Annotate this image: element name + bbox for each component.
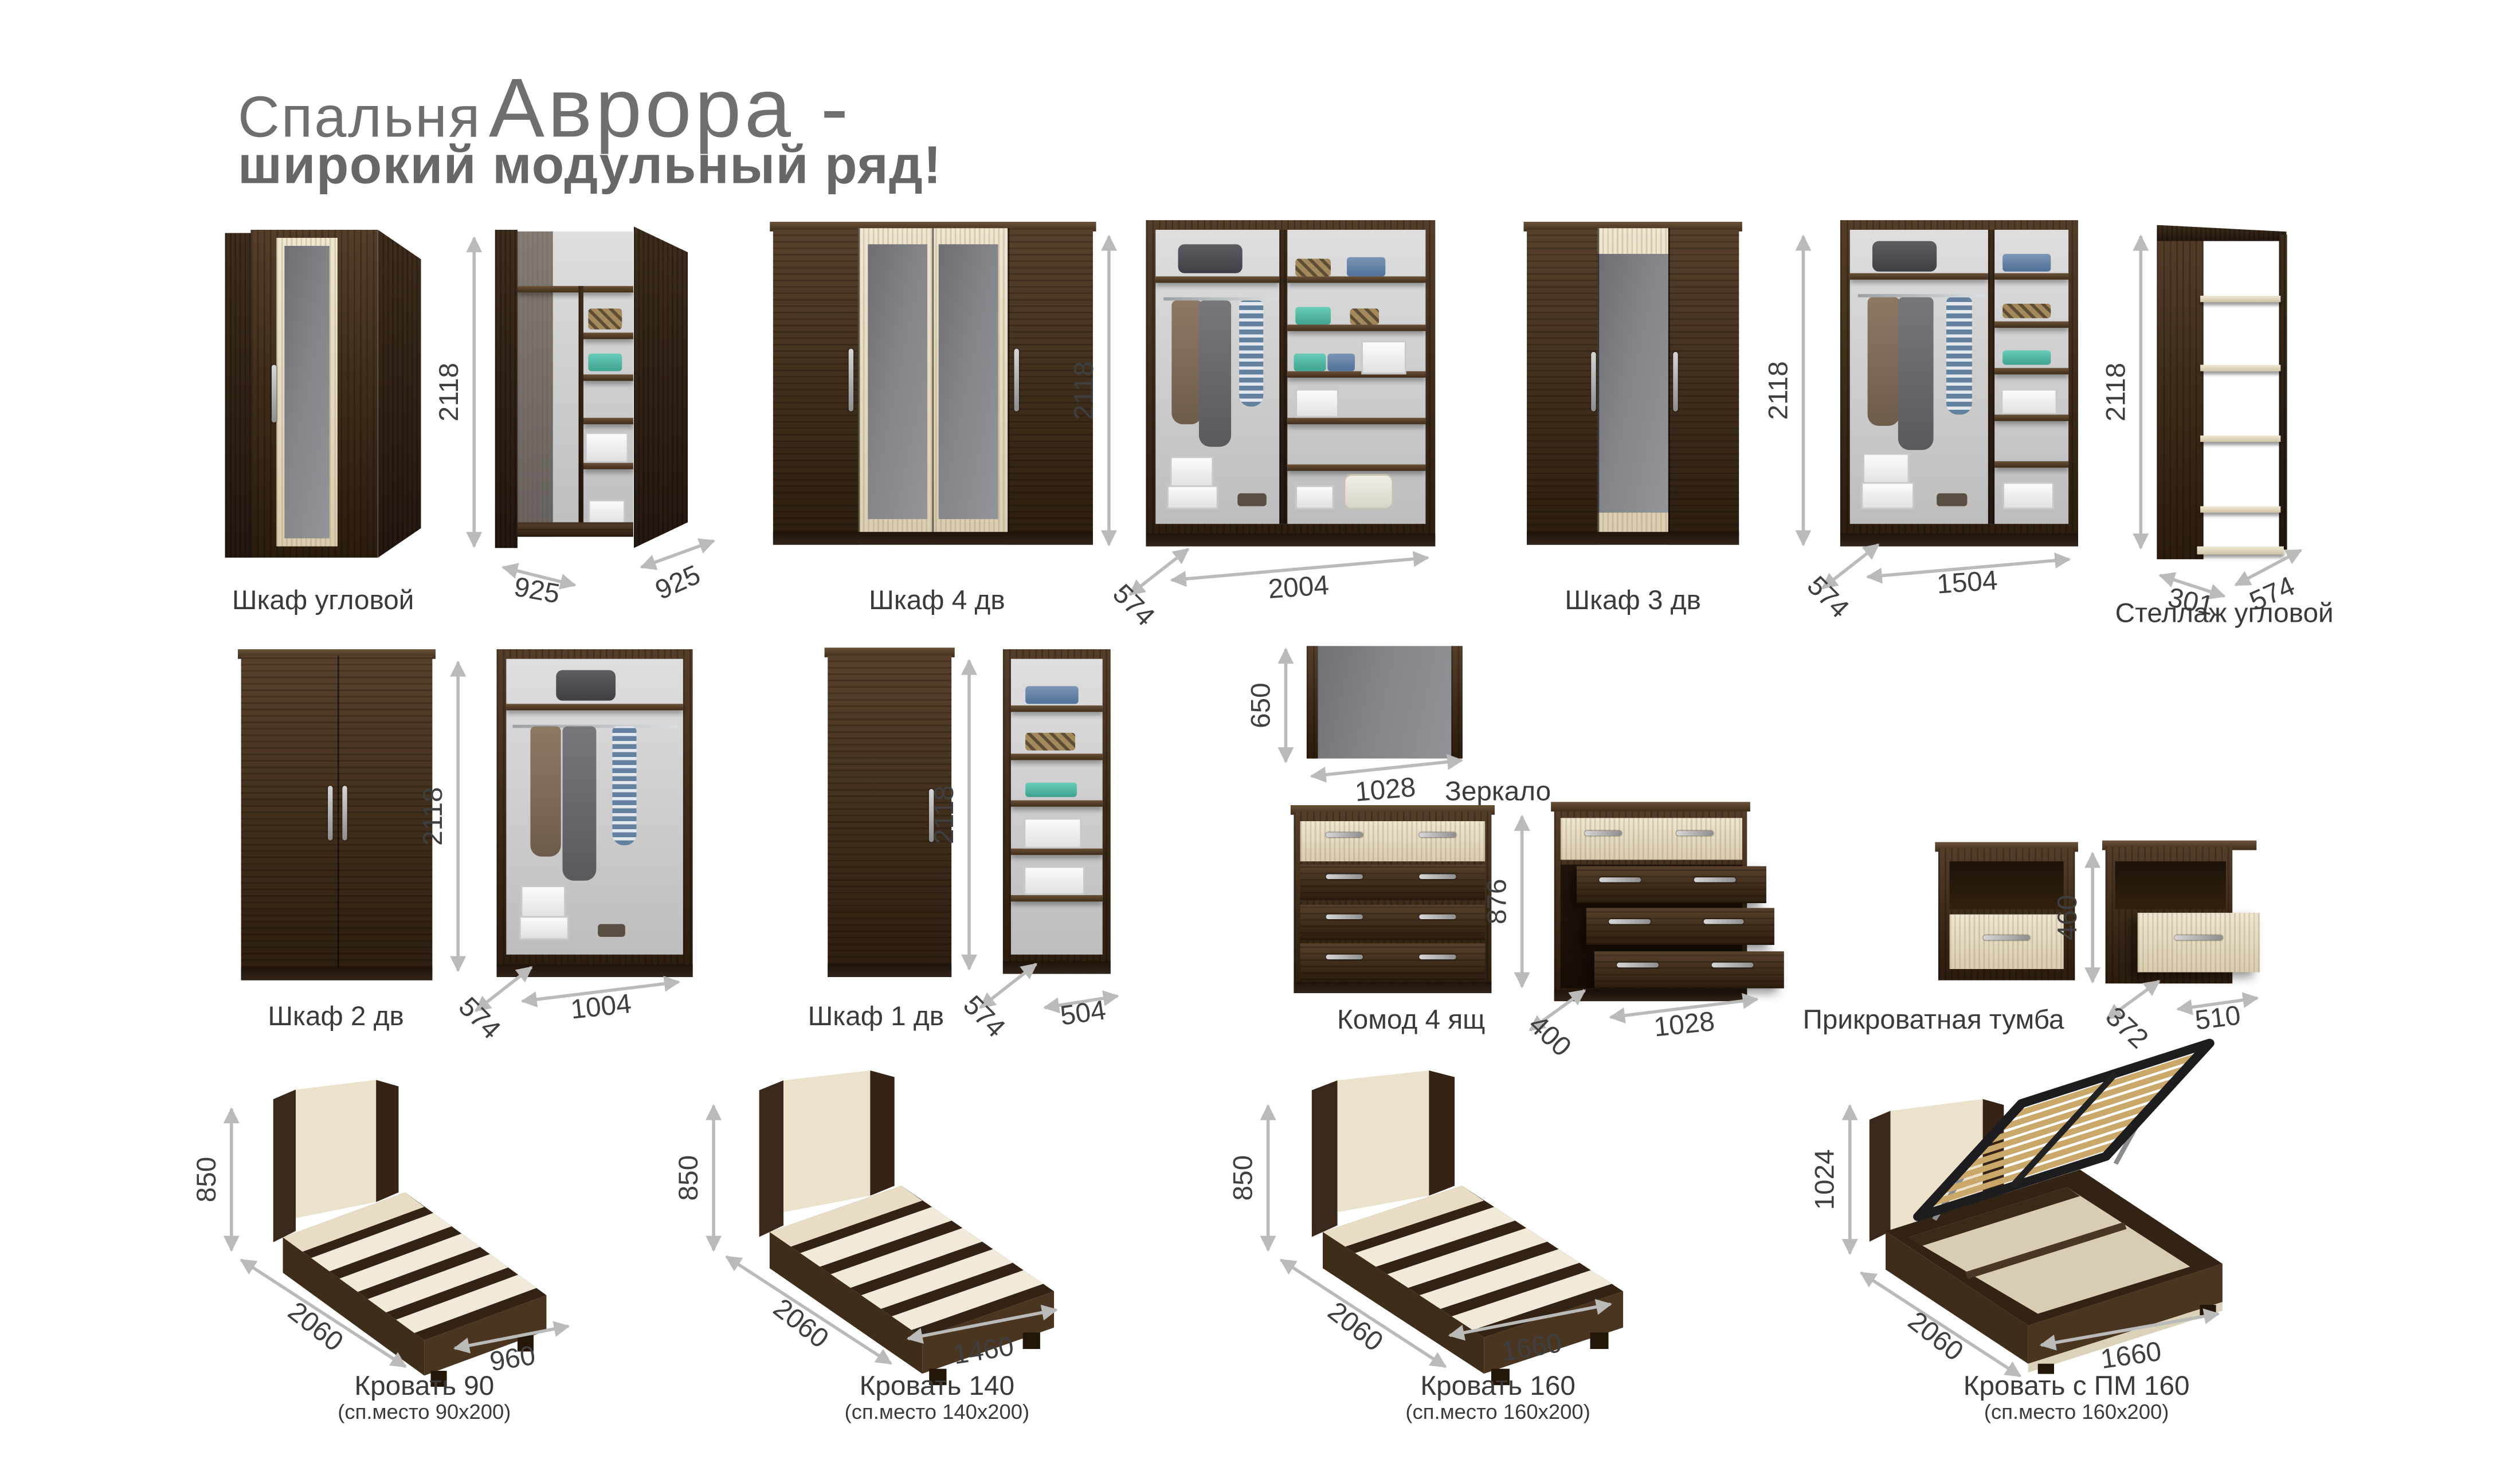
wardrobe-1d-open-illustration <box>1003 649 1111 974</box>
bed-lift-160-illustration <box>1837 1029 2258 1374</box>
plinth <box>241 967 433 980</box>
bed-140-illustration <box>707 1064 1080 1385</box>
dim-height: 2118 <box>1069 361 1101 420</box>
drawer-4-open <box>1594 951 1784 988</box>
mirror-doors <box>858 228 1008 544</box>
door-handle <box>1590 352 1595 412</box>
divider <box>578 287 583 525</box>
drawer-handle <box>1600 877 1641 882</box>
drawer-handle <box>1676 831 1712 836</box>
plinth <box>828 964 951 977</box>
plinth <box>1294 982 1491 993</box>
dim-height: 460 <box>2052 895 2084 940</box>
bag <box>1872 242 1938 271</box>
drawer-3-open <box>1586 909 1775 946</box>
shelf <box>1995 462 2068 468</box>
dresser-open-illustration <box>1554 809 1780 1002</box>
dim-height: 2118 <box>929 786 961 845</box>
dim-line-height <box>1520 817 1524 987</box>
drawer-handle <box>1712 962 1754 967</box>
product-label: Кровать 140 <box>860 1371 1015 1403</box>
door-handle <box>1014 348 1019 411</box>
drawer-handle <box>1418 914 1456 919</box>
storage-box <box>519 916 570 940</box>
product-label: Зеркало <box>1445 776 1551 808</box>
dim-depth: 574 <box>1106 578 1161 633</box>
folded-clothes <box>587 354 622 372</box>
mirror-frame-left <box>1307 646 1318 758</box>
folded-clothes <box>2003 350 2051 365</box>
dim-depth: 574 <box>1800 570 1855 625</box>
dim-width: 504 <box>1059 995 1108 1033</box>
dim-depth: 400 <box>1522 1009 1577 1064</box>
corner-wardrobe-closed-illustration <box>225 230 421 558</box>
dresser-closed-illustration <box>1294 811 1491 993</box>
shoes <box>1237 494 1267 505</box>
back-panel <box>2157 230 2202 559</box>
coat <box>1172 300 1202 423</box>
shelf <box>583 464 634 470</box>
product-label: Шкаф угловой <box>232 585 414 617</box>
storage-box <box>1296 485 1334 509</box>
drawer-1 <box>1300 821 1486 861</box>
door-handle <box>848 348 853 411</box>
drawer-handle <box>1617 962 1659 967</box>
drawer-handle <box>1418 954 1456 959</box>
plinth <box>1527 532 1739 545</box>
drawer-handle <box>1418 874 1456 879</box>
folded-clothes <box>1296 259 1331 277</box>
top-cap <box>2157 225 2286 242</box>
shelf <box>2200 506 2281 512</box>
folded-clothes <box>1026 733 1076 751</box>
dim-height: 2118 <box>418 787 450 846</box>
drawer-3 <box>1300 904 1486 940</box>
coat <box>1867 297 1900 426</box>
dim-line-height <box>230 1109 233 1250</box>
storage-box <box>585 433 628 464</box>
shelf <box>583 418 634 424</box>
drawer-handle <box>1608 920 1650 924</box>
folded-clothes <box>1347 256 1385 277</box>
dim-width: 1004 <box>569 989 633 1027</box>
striped-shirt <box>612 727 637 845</box>
dim-line-height <box>2091 853 2094 982</box>
bag <box>1178 245 1243 274</box>
door-seam <box>933 228 935 544</box>
folded-clothes <box>2003 253 2051 271</box>
drawer-handle <box>1326 874 1363 879</box>
shelf <box>1995 321 2068 327</box>
drawer-handle <box>1326 833 1363 837</box>
door-handle <box>1673 352 1678 412</box>
folded-clothes <box>1328 353 1355 371</box>
interior <box>1849 230 2068 523</box>
dim-line-height <box>472 238 476 546</box>
dim-depth: 574 <box>956 990 1011 1045</box>
drawer-2-open <box>1577 866 1766 903</box>
side-panel <box>495 230 518 548</box>
plinth <box>1146 534 1435 547</box>
dim-height: 850 <box>673 1155 706 1201</box>
dim-width-right: 925 <box>651 559 706 607</box>
interior <box>1156 230 1425 523</box>
storage-box <box>1861 483 1914 509</box>
storage-box <box>1296 389 1339 418</box>
drawer-2 <box>1300 864 1486 900</box>
shelf <box>1849 274 1988 280</box>
product-sublabel: (сп.место 160x200) <box>1405 1400 1590 1424</box>
storage-box <box>1024 866 1085 896</box>
top-shelf <box>518 287 634 293</box>
nightstand-open-illustration <box>2106 847 2254 983</box>
dim-line-height <box>2139 236 2143 548</box>
door-handle <box>327 786 332 841</box>
shelf <box>1012 801 1102 807</box>
bottom-shelf <box>2197 546 2284 554</box>
storage-box <box>2003 483 2055 509</box>
shelf <box>1012 895 1102 901</box>
left-door <box>1527 228 1598 544</box>
folded-clothes <box>1026 783 1076 798</box>
mirror-glass <box>284 246 328 539</box>
dim-width: 1028 <box>1652 1006 1716 1045</box>
storage-box <box>1167 485 1218 509</box>
coat <box>1199 300 1231 447</box>
striped-shirt <box>1946 297 1972 415</box>
shelf <box>1288 465 1425 471</box>
folded-clothes <box>2003 303 2051 318</box>
open-niche <box>1949 862 2064 909</box>
door-seam <box>1008 228 1010 544</box>
drawer-handle <box>1694 877 1735 882</box>
dim-line-height <box>456 662 460 970</box>
product-label: Кровать 160 <box>1420 1371 1576 1403</box>
shelf <box>1288 324 1425 330</box>
drawer-handle <box>1585 831 1621 836</box>
storage-box <box>520 886 566 919</box>
drawer-4 <box>1300 944 1486 980</box>
side-panel <box>225 233 250 558</box>
shelf <box>2200 436 2281 442</box>
corner-wardrobe-open-illustration <box>495 226 688 548</box>
mirror-glass <box>939 244 997 520</box>
product-sublabel: (сп.место 90x200) <box>338 1400 511 1424</box>
drawer-handle <box>1326 914 1363 919</box>
drawer-1 <box>1560 818 1742 860</box>
dim-line-height <box>1848 1105 1852 1253</box>
corner-shelf-illustration <box>2157 225 2292 559</box>
product-label: Стеллаж угловой <box>2115 598 2334 630</box>
shelf <box>2200 295 2281 301</box>
wardrobe-4d-open-illustration <box>1146 220 1435 546</box>
drawer <box>1949 915 2064 970</box>
dim-height: 2118 <box>1763 361 1795 420</box>
dim-line-height <box>712 1105 715 1250</box>
wardrobe-3d-closed-illustration <box>1527 228 1739 544</box>
door-seam <box>858 228 860 544</box>
striped-shirt <box>1240 300 1264 406</box>
product-label: Шкаф 1 дв <box>808 1001 944 1033</box>
mirror-glass <box>868 244 927 520</box>
dim-line-height <box>1802 236 1805 544</box>
divider <box>1280 230 1288 523</box>
folded-clothes <box>1293 353 1325 371</box>
folded-clothes <box>1350 309 1379 324</box>
mirror-glass <box>1307 646 1463 758</box>
shelf <box>1995 274 2068 280</box>
door-seam <box>1598 228 1600 544</box>
storage-box <box>1170 456 1213 489</box>
door-seam <box>1668 228 1669 544</box>
shelf <box>507 703 683 709</box>
wardrobe-2d-closed-illustration <box>241 656 433 980</box>
shelf <box>1012 754 1102 760</box>
shelf <box>1995 415 2068 421</box>
wardrobe-3d-open-illustration <box>1840 220 2078 546</box>
page-title-line2: широкий модульный ряд! <box>238 135 942 197</box>
mirror-illustration <box>1307 646 1463 758</box>
dim-height: 650 <box>1245 683 1277 728</box>
shelf <box>1012 848 1102 854</box>
shelf <box>1012 706 1102 712</box>
right-edge <box>2278 235 2287 549</box>
dim-line-height <box>1107 236 1111 544</box>
plinth <box>1003 961 1111 974</box>
white-bag <box>1345 473 1393 509</box>
product-label: Шкаф 4 дв <box>869 585 1005 617</box>
shoes <box>1937 494 1968 505</box>
drawer-handle <box>1326 954 1363 959</box>
bag <box>556 671 616 700</box>
interior <box>518 232 634 537</box>
right-door <box>1668 228 1739 544</box>
shelf <box>1288 418 1425 424</box>
storage-box <box>1024 818 1081 848</box>
product-label: Шкаф 3 дв <box>1565 585 1700 617</box>
dim-depth: 574 <box>452 991 507 1046</box>
coat <box>1898 297 1933 450</box>
product-sublabel: (сп.место 160x200) <box>1984 1400 2169 1424</box>
shelf <box>583 375 634 381</box>
folded-clothes <box>1296 306 1331 324</box>
dim-line-height <box>1284 649 1288 762</box>
wardrobe-2d-open-illustration <box>497 649 693 977</box>
shoes <box>598 924 625 936</box>
door-handle <box>272 364 277 423</box>
center-door <box>1598 228 1668 544</box>
drawer-handle <box>1984 935 2029 940</box>
interior-shade <box>518 232 553 537</box>
storage-box <box>1361 342 1407 374</box>
dim-width-left: 925 <box>512 571 562 611</box>
bed-90-illustration <box>225 1073 571 1387</box>
angled-side <box>378 230 421 558</box>
top-panel <box>1551 802 1751 811</box>
interior <box>1012 659 1102 954</box>
shelf <box>1156 277 1280 283</box>
interior <box>507 659 683 954</box>
mirror-door <box>276 238 337 546</box>
dim-height: 850 <box>191 1157 224 1203</box>
mirror-frame-right <box>1452 646 1463 758</box>
mirror-glass <box>1598 253 1668 513</box>
drawer-handle <box>1418 833 1456 837</box>
dim-height: 876 <box>1482 878 1514 924</box>
product-label: Кровать 90 <box>354 1371 494 1403</box>
storage-box <box>1863 453 1910 486</box>
left-door <box>773 228 858 544</box>
wardrobe-4d-closed-illustration <box>773 228 1093 544</box>
dim-height: 850 <box>1228 1155 1260 1201</box>
floor <box>518 521 634 537</box>
product-label: Комод 4 ящ <box>1337 1005 1485 1037</box>
folded-clothes <box>1026 685 1078 703</box>
dim-height: 1024 <box>1810 1149 1842 1210</box>
dim-height: 2118 <box>434 363 466 422</box>
catalog-page: Спальня Аврора - широкий модульный ряд! … <box>0 0 2520 1459</box>
dim-width: 2004 <box>1267 570 1330 606</box>
storage-box <box>2001 389 2056 415</box>
product-label: Шкаф 2 дв <box>268 1001 403 1033</box>
divider <box>1988 230 1995 523</box>
shelf <box>1288 277 1425 283</box>
plinth <box>773 532 1093 545</box>
drawer-handle <box>2174 935 2223 940</box>
folded-clothes <box>587 308 622 329</box>
dim-width: 1504 <box>1936 565 1999 601</box>
dim-line-height <box>967 661 971 969</box>
dim-line-height <box>1267 1105 1270 1250</box>
shelf <box>2200 366 2281 372</box>
angled-side <box>634 226 688 548</box>
shelf <box>1995 368 2068 374</box>
open-niche <box>2116 861 2225 910</box>
coat <box>563 727 596 880</box>
drawer-open <box>2138 912 2259 972</box>
drawer-handle <box>1703 920 1745 924</box>
door-seam <box>337 656 339 980</box>
door-handle <box>342 786 347 841</box>
dim-height: 2118 <box>2100 363 2133 422</box>
product-label: Кровать с ПМ 160 <box>1964 1371 2190 1403</box>
coat <box>531 727 561 857</box>
shelf <box>583 332 634 339</box>
dim-width: 1028 <box>1354 772 1417 809</box>
product-sublabel: (сп.место 140x200) <box>845 1400 1030 1424</box>
